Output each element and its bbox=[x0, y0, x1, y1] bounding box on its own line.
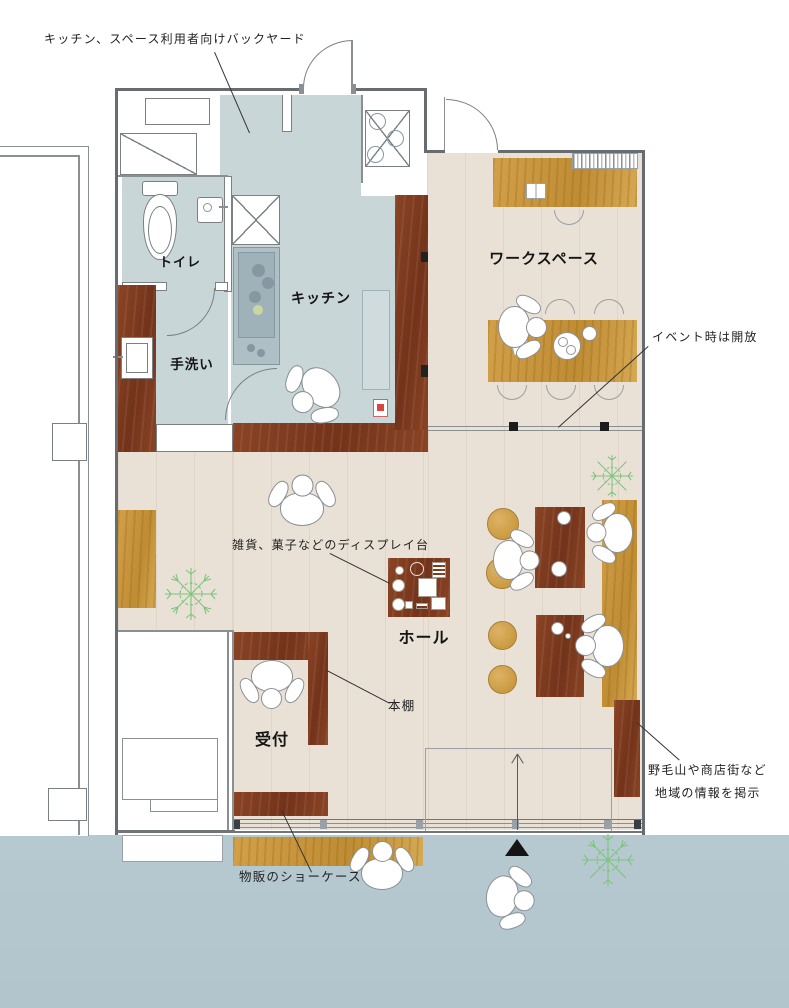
kitchen-side-counter bbox=[362, 290, 390, 390]
ext-wall-right bbox=[642, 150, 645, 835]
room-label-handwash: 手洗い bbox=[170, 353, 214, 373]
floor-plan-canvas: トイレ 手洗い キッチン ワークスペース ホール 受付 キッチン、スペース利用者… bbox=[0, 0, 789, 1008]
left-room-wall bbox=[118, 630, 233, 632]
neighbor-inner-wall bbox=[0, 155, 79, 157]
door-jamb bbox=[299, 84, 304, 94]
room-label-hall: ホール bbox=[398, 624, 449, 648]
person-workspace bbox=[488, 299, 548, 355]
book-row bbox=[572, 153, 638, 169]
display-item bbox=[405, 601, 413, 609]
basin-faucet bbox=[219, 206, 228, 208]
closet bbox=[145, 98, 210, 125]
annotation-event-open: イベント時は開放 bbox=[652, 328, 758, 345]
person-head bbox=[292, 475, 314, 497]
backyard-notch bbox=[282, 95, 292, 132]
door-leaf bbox=[351, 40, 353, 88]
local-info-panel bbox=[614, 700, 640, 797]
person-body bbox=[603, 513, 633, 553]
left-room-step bbox=[150, 799, 218, 812]
storefront-mullion bbox=[416, 820, 423, 829]
cup bbox=[582, 326, 597, 341]
display-item bbox=[392, 598, 405, 611]
ext-wall-left bbox=[115, 88, 118, 835]
display-item bbox=[410, 562, 424, 576]
reception-bookshelf bbox=[308, 632, 328, 745]
display-item bbox=[432, 562, 446, 578]
ext-wall-top bbox=[115, 88, 303, 91]
stool bbox=[488, 665, 517, 694]
person-hall bbox=[273, 474, 332, 537]
left-room-wall bbox=[115, 830, 235, 833]
sink-unit-bowl bbox=[367, 146, 384, 163]
display-item bbox=[431, 597, 446, 610]
bench-left-wall bbox=[118, 510, 156, 608]
toilet-seat bbox=[148, 206, 172, 254]
faucet bbox=[257, 349, 265, 357]
plant bbox=[588, 452, 636, 500]
room-label-toilet: トイレ bbox=[159, 252, 201, 271]
partition-stop bbox=[600, 422, 609, 431]
annotation-bookshelf: 本棚 bbox=[388, 695, 415, 714]
partition-stop bbox=[509, 422, 518, 431]
person-cafe-1 bbox=[484, 533, 541, 586]
outdoor-step bbox=[122, 835, 223, 862]
movable-partition bbox=[428, 430, 642, 431]
ext-wall-top bbox=[353, 88, 427, 91]
annotation-display-stand: 雑貨、菓子などのディスプレイ台 bbox=[232, 536, 429, 553]
room-label-kitchen: キッチン bbox=[291, 288, 351, 308]
sink-unit-bowl bbox=[387, 130, 404, 147]
neighbor-inner-wall bbox=[78, 155, 80, 835]
room-label-reception: 受付 bbox=[255, 726, 289, 750]
person-cafe-2 bbox=[586, 506, 643, 559]
handwash-sink-inner bbox=[126, 343, 148, 373]
cup bbox=[565, 633, 571, 639]
person-body bbox=[592, 625, 624, 667]
kitchen-wall-right bbox=[395, 195, 428, 430]
door-jamb bbox=[351, 84, 356, 94]
burner bbox=[252, 264, 265, 277]
left-room-porch bbox=[122, 738, 218, 800]
person-walking bbox=[472, 864, 541, 930]
storefront-mullion bbox=[634, 820, 641, 829]
person-body bbox=[361, 858, 403, 890]
neighbor-pilaster bbox=[48, 788, 87, 821]
entrance-zone bbox=[425, 748, 612, 831]
ext-wall-step bbox=[424, 88, 427, 153]
wall-line bbox=[361, 95, 363, 183]
person-cafe-3 bbox=[574, 618, 634, 674]
room-label-workspace: ワークスペース bbox=[489, 248, 599, 269]
person-head bbox=[520, 551, 540, 571]
plant bbox=[161, 564, 221, 624]
person-body bbox=[280, 492, 324, 526]
ext-wall-top-right bbox=[498, 150, 645, 153]
person-reception bbox=[244, 650, 300, 710]
sink-round bbox=[253, 305, 263, 315]
person-head bbox=[526, 317, 547, 338]
shaft-hatch bbox=[232, 195, 280, 245]
white-patch bbox=[361, 176, 395, 196]
movable-partition bbox=[428, 426, 642, 427]
burner bbox=[262, 277, 274, 289]
burner bbox=[249, 291, 261, 303]
showcase-counter bbox=[233, 792, 328, 816]
stool bbox=[488, 621, 517, 650]
left-room-wall bbox=[232, 630, 234, 832]
open-book bbox=[526, 183, 546, 199]
display-item bbox=[418, 578, 437, 597]
neighbor-building bbox=[0, 146, 89, 836]
plate-item bbox=[566, 345, 576, 355]
ext-wall-top-right bbox=[424, 150, 445, 153]
left-room-wall bbox=[227, 630, 229, 832]
annotation-backyard: キッチン、スペース利用者向けバックヤード bbox=[44, 30, 306, 47]
fire-extinguisher-mark bbox=[377, 404, 384, 411]
storefront-mullion bbox=[233, 820, 240, 829]
wall-line bbox=[118, 175, 228, 177]
person-head bbox=[261, 688, 282, 709]
display-item bbox=[395, 566, 404, 575]
person-head bbox=[575, 635, 596, 656]
annotation-local-info-line1: 野毛山や商店街など bbox=[648, 761, 767, 778]
person-head bbox=[372, 841, 393, 862]
annotation-local-info-line2: 地域の情報を掲示 bbox=[655, 784, 761, 801]
person-head bbox=[586, 523, 606, 543]
neighbor-pilaster bbox=[52, 423, 87, 461]
display-item bbox=[392, 579, 405, 592]
wall bbox=[215, 282, 228, 291]
storefront-mullion bbox=[320, 820, 327, 829]
annotation-showcase: 物販のショーケース bbox=[239, 866, 362, 885]
entrance-marker bbox=[505, 839, 529, 856]
wall bbox=[224, 176, 232, 292]
plate bbox=[551, 561, 567, 577]
display-item bbox=[416, 603, 428, 609]
wall bbox=[156, 424, 233, 452]
closet-diagonal bbox=[120, 133, 197, 175]
door-pivot bbox=[421, 252, 428, 262]
basin-drain bbox=[203, 203, 212, 212]
person-bench-outside bbox=[354, 840, 410, 900]
door-arc-backyard bbox=[303, 40, 353, 88]
entrance-arrow bbox=[517, 754, 518, 830]
door-leaf bbox=[444, 97, 446, 150]
faucet bbox=[247, 344, 255, 352]
cup bbox=[557, 511, 571, 525]
sink-unit-bowl bbox=[369, 113, 386, 130]
plant bbox=[578, 830, 638, 890]
door-pivot bbox=[421, 365, 428, 377]
cup bbox=[551, 622, 564, 635]
